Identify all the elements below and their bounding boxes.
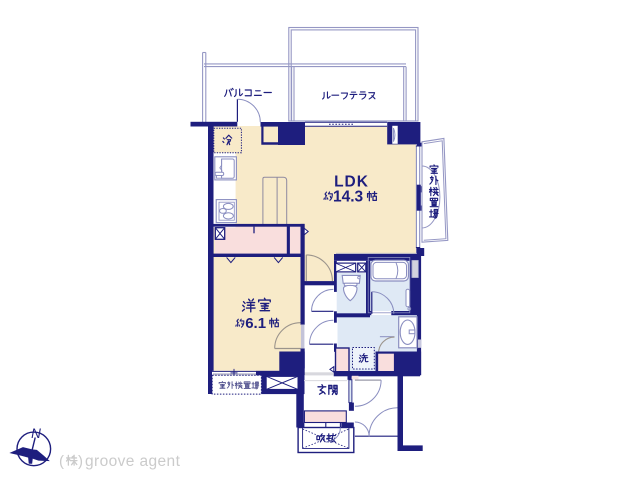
svg-text:): ) (78, 453, 83, 470)
svg-text:14.3: 14.3 (333, 189, 364, 206)
svg-text:(: ( (59, 453, 64, 470)
svg-text:groove agent: groove agent (85, 453, 181, 470)
svg-text:6.1: 6.1 (245, 315, 266, 332)
svg-text:N: N (31, 426, 41, 441)
